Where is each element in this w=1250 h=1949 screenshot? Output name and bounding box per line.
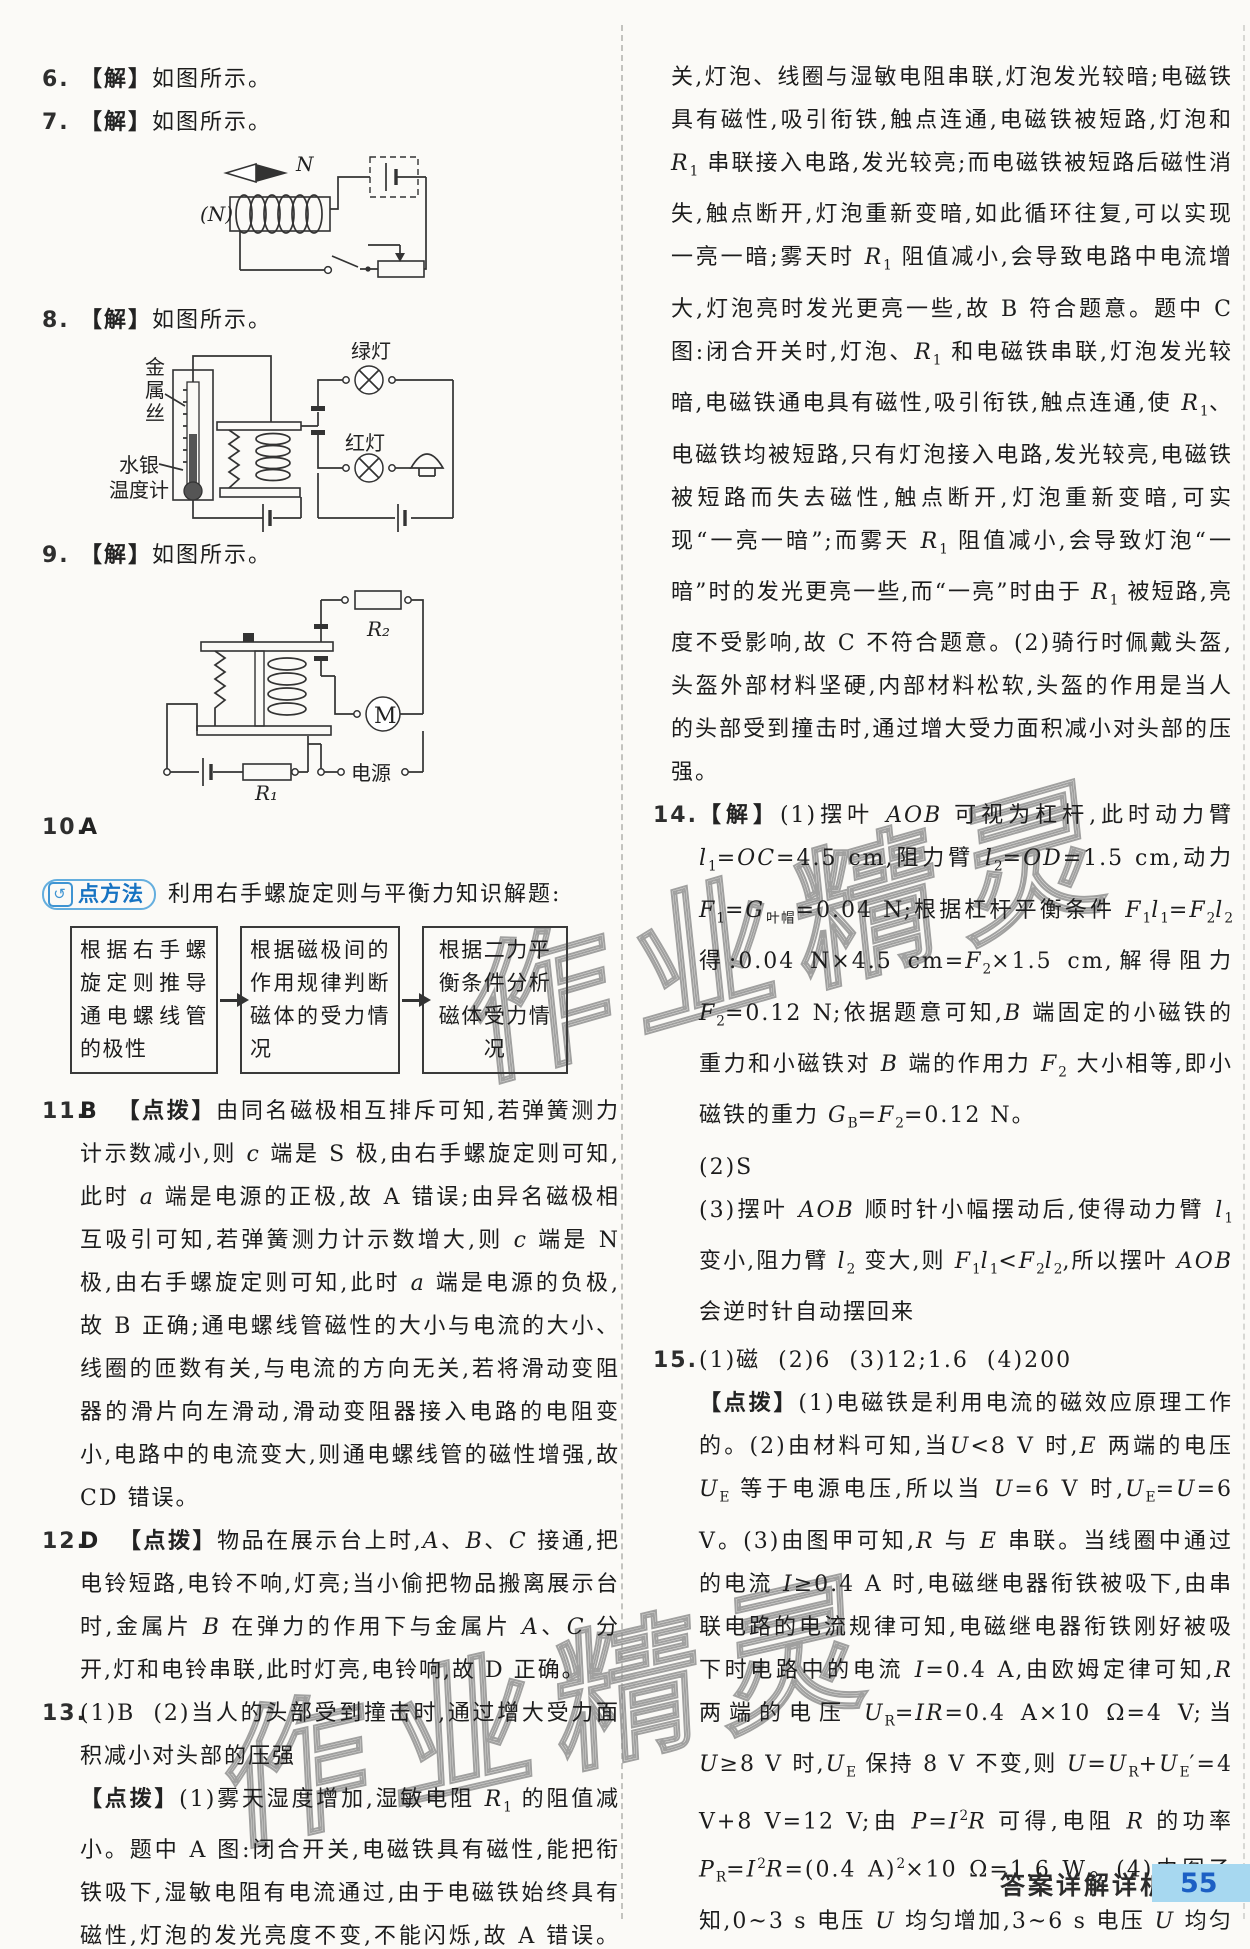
item-number: 9. [42, 534, 80, 577]
item-13-explanation: 【点拨】(1)雾天湿度增加,湿敏电阻 R1 的阻值减小。题中 A 图:闭合开关,… [80, 1778, 620, 1949]
item-body: A [80, 806, 620, 849]
footer-section-title: 答案详解详析 [1000, 1866, 1168, 1902]
answer-item-7: 7. 【解】如图所示。 [42, 101, 620, 144]
motor-label: M [374, 704, 397, 729]
item-number: 15. [653, 1339, 699, 1949]
flow-step-2: 根据磁极间的作用规律判断磁体的受力情况 [240, 926, 400, 1074]
item-number: 8. [42, 299, 80, 342]
item-body: B【点拨】由同名磁极相互排斥可知,若弹簧测力计示数减小,则 c 端是 S 极,由… [80, 1090, 620, 1520]
method-intro: 利用右手螺旋定则与平衡力知识解题: [168, 873, 561, 916]
flow-step-1: 根据右手螺旋定则推导通电螺线管的极性 [70, 926, 218, 1074]
method-tip-row: ↺ 点方法 利用右手螺旋定则与平衡力知识解题: [42, 873, 620, 916]
item-14-part3: (3)摆叶 AOB 顺时针小幅摆动后,使得动力臂 l1 变小,阻力臂 l2 变大… [699, 1189, 1233, 1335]
answer-item-13: 13. (1)B(2)当人的头部受到撞击时,通过增大受力面积减小对头部的压强 【… [42, 1692, 620, 1949]
page-number-badge: 55 [1152, 1864, 1250, 1902]
item-14-part2: (2)S [699, 1146, 1233, 1189]
red-lamp-label: 红灯 [345, 431, 385, 455]
answer-item-14: 14. 【解】(1)摆叶 AOB 可视为杠杆,此时动力臂 l1=OC=4.5 c… [653, 794, 1233, 1334]
method-badge-label: 点方法 [78, 884, 144, 905]
metal-wire-label: 丝 [145, 401, 165, 425]
resistor-r2-label: R₂ [366, 617, 390, 641]
metal-wire-label: 属 [145, 378, 165, 402]
power-source-label: 电源 [351, 761, 391, 785]
item-number: 6. [42, 58, 80, 101]
item-number: 10. [42, 806, 80, 849]
answer-item-9: 9. 【解】如图所示。 [42, 534, 620, 577]
item-13-continued: 关,灯泡、线圈与湿敏电阻串联,灯泡发光较暗;电磁铁具有磁性,吸引衔铁,触点连通,… [671, 56, 1233, 794]
answer-item-12: 12. D【点拨】物品在展示台上时,A、B、C 接通,把电铃短路,电铃不响,灯亮… [42, 1520, 620, 1692]
solenoid-circuit-diagram: N (N) [200, 149, 435, 299]
page-edge-line [1243, 25, 1245, 1919]
mercury-thermometer-label: 温度计 [109, 478, 169, 502]
left-column: 6. 【解】如图所示。 7. 【解】如图所示。 N (N) [42, 0, 620, 1949]
flow-step-3: 根据二力平衡条件分析磁体受力情况 [422, 926, 568, 1074]
item-number: 7. [42, 101, 80, 144]
item-body: 【解】(1)摆叶 AOB 可视为杠杆,此时动力臂 l1=OC=4.5 cm,阻力… [699, 794, 1233, 1334]
item-number: 11. [42, 1090, 80, 1520]
item-number: 14. [653, 794, 699, 1334]
compass-n-label: N [295, 152, 315, 176]
metal-wire-label: 金 [145, 355, 165, 379]
answer-item-10: 10. A [42, 806, 620, 849]
answer-item-15: 15. (1)磁(2)6(3)12;1.6(4)200 【点拨】(1)电磁铁是利… [653, 1339, 1233, 1949]
answer-item-6: 6. 【解】如图所示。 [42, 58, 620, 101]
item-15-answers: (1)磁(2)6(3)12;1.6(4)200 [699, 1339, 1233, 1382]
answer-item-11: 11. B【点拨】由同名磁极相互排斥可知,若弹簧测力计示数减小,则 c 端是 S… [42, 1090, 620, 1520]
item-body: D【点拨】物品在展示台上时,A、B、C 接通,把电铃短路,电铃不响,灯亮;当小偷… [80, 1520, 620, 1692]
item-13-answers: (1)B(2)当人的头部受到撞击时,通过增大受力面积减小对头部的压强 [80, 1692, 620, 1778]
item-body: (1)磁(2)6(3)12;1.6(4)200 【点拨】(1)电磁铁是利用电流的… [699, 1339, 1233, 1949]
item-body: 【解】如图所示。 [80, 534, 620, 577]
workbook-answer-page: 作业精灵 作业精灵 6. 【解】如图所示。 7. 【解】如图所示。 N (N) [0, 0, 1250, 1949]
item-body: 【解】如图所示。 [80, 101, 620, 144]
curved-arrow-icon: ↺ [48, 882, 73, 907]
thermometer-relay-circuit-diagram: 金 属 丝 水银 温度计 [105, 342, 457, 534]
resistor-r1-label: R₁ [254, 781, 278, 802]
item-body: (1)B(2)当人的头部受到撞击时,通过增大受力面积减小对头部的压强 【点拨】(… [80, 1692, 620, 1949]
column-divider [621, 25, 623, 1919]
green-lamp-label: 绿灯 [351, 342, 391, 363]
page-number: 55 [1180, 1868, 1218, 1899]
item-number: 12. [42, 1520, 80, 1692]
method-flowchart: 根据右手螺旋定则推导通电螺线管的极性 根据磁极间的作用规律判断磁体的受力情况 根… [70, 926, 620, 1074]
flow-arrow-icon [220, 999, 238, 1002]
coil-n-label: (N) [200, 202, 233, 226]
answer-item-8: 8. 【解】如图所示。 [42, 299, 620, 342]
right-column: 关,灯泡、线圈与湿敏电阻串联,灯泡发光较暗;电磁铁具有磁性,吸引衔铁,触点连通,… [653, 0, 1233, 1949]
item-number: 13. [42, 1692, 80, 1949]
mercury-thermometer-label: 水银 [119, 453, 159, 477]
flow-arrow-icon [402, 999, 420, 1002]
item-body: 【解】如图所示。 [80, 299, 620, 342]
method-badge: ↺ 点方法 [42, 879, 156, 910]
item-14-part1: 【解】(1)摆叶 AOB 可视为杠杆,此时动力臂 l1=OC=4.5 cm,阻力… [699, 794, 1233, 1145]
item-body: 【解】如图所示。 [80, 58, 620, 101]
relay-motor-circuit-diagram: R₂ M R [155, 584, 437, 802]
